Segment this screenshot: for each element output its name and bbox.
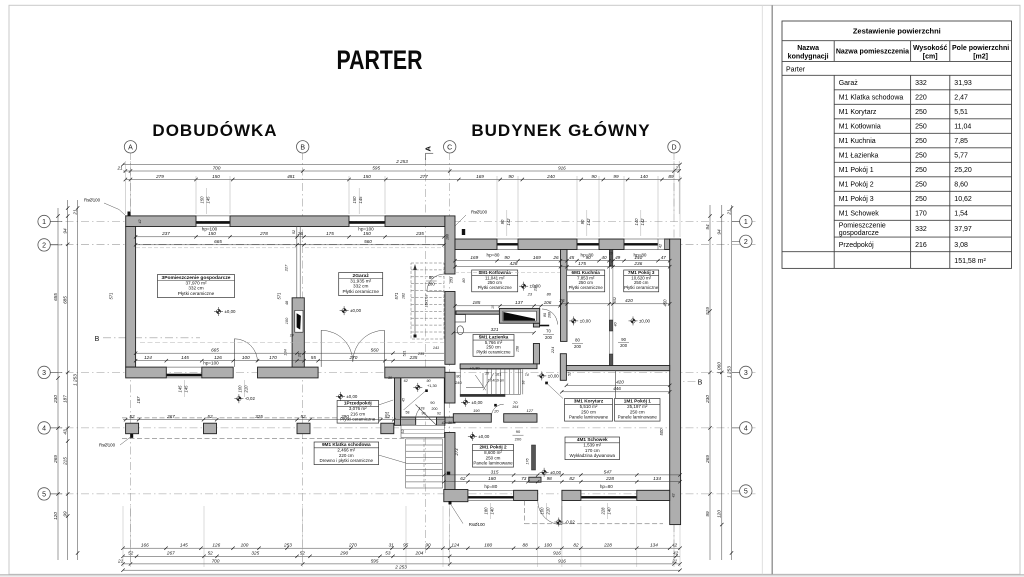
svg-text:134: 134: [650, 543, 658, 548]
svg-text:10: 10: [485, 371, 489, 375]
svg-text:2: 2: [42, 242, 46, 249]
svg-text:[cm]: [cm]: [923, 54, 938, 61]
svg-text:Płytki ceramiczne: Płytki ceramiczne: [178, 291, 215, 296]
svg-text:21: 21: [116, 165, 123, 170]
svg-text:73: 73: [521, 476, 527, 481]
svg-text:253: 253: [283, 543, 292, 548]
svg-text:188: 188: [446, 234, 450, 240]
svg-text:4: 4: [744, 425, 748, 432]
svg-text:180: 180: [488, 476, 496, 481]
svg-text:70: 70: [546, 329, 551, 334]
svg-text:40: 40: [601, 255, 607, 260]
svg-text:120: 120: [717, 510, 722, 518]
svg-text:420: 420: [625, 298, 633, 303]
svg-text:kondygnacji: kondygnacji: [788, 54, 829, 61]
svg-text:140: 140: [490, 507, 495, 515]
svg-text:145: 145: [358, 196, 363, 204]
svg-text:235: 235: [417, 352, 425, 356]
svg-text:+1,30: +1,30: [427, 383, 438, 388]
svg-text:150: 150: [363, 231, 371, 236]
svg-text:21: 21: [72, 209, 77, 216]
svg-text:1Przedpokój: 1Przedpokój: [344, 401, 372, 406]
svg-text:332: 332: [915, 226, 927, 233]
svg-text:42: 42: [442, 421, 446, 425]
svg-text:80: 80: [429, 275, 434, 280]
svg-text:3,08: 3,08: [954, 242, 968, 249]
svg-text:55: 55: [311, 355, 317, 360]
svg-text:200: 200: [574, 344, 582, 349]
svg-text:595: 595: [372, 165, 380, 170]
svg-text:665: 665: [214, 239, 222, 244]
svg-text:45: 45: [569, 255, 575, 260]
svg-text:B: B: [300, 144, 305, 151]
svg-text:169: 169: [470, 255, 478, 260]
svg-text:21: 21: [117, 558, 124, 563]
svg-text:250: 250: [915, 153, 927, 160]
svg-text:277: 277: [419, 174, 428, 179]
svg-text:42: 42: [138, 220, 142, 224]
svg-text:90: 90: [504, 255, 510, 260]
svg-text:151,58 m²: 151,58 m²: [954, 258, 986, 265]
svg-text:B: B: [95, 336, 100, 343]
svg-text:14: 14: [290, 334, 294, 338]
svg-text:321: 321: [491, 327, 499, 332]
svg-text:Wykładzina dywanowa: Wykładzina dywanowa: [570, 453, 616, 458]
svg-text:1 253: 1 253: [72, 374, 77, 386]
svg-text:±0,00: ±0,00: [639, 318, 651, 323]
svg-text:±0,00: ±0,00: [346, 394, 358, 399]
svg-text:-0,02: -0,02: [245, 396, 256, 401]
svg-text:158: 158: [516, 345, 520, 352]
svg-text:270: 270: [348, 543, 357, 548]
svg-text:665: 665: [211, 348, 219, 353]
svg-text:Płytki ceramiczne: Płytki ceramiczne: [476, 350, 511, 355]
svg-text:25,20: 25,20: [954, 167, 972, 174]
svg-text:521: 521: [402, 351, 406, 357]
svg-text:150: 150: [363, 174, 371, 179]
svg-text:5: 5: [744, 489, 748, 496]
svg-text:Nazwa: Nazwa: [797, 45, 819, 52]
svg-text:1,54: 1,54: [954, 211, 968, 218]
svg-text:10: 10: [609, 252, 613, 256]
svg-text:273: 273: [454, 448, 459, 457]
svg-text:82: 82: [573, 543, 579, 548]
svg-text:5,51: 5,51: [954, 109, 968, 116]
svg-text:52: 52: [300, 551, 306, 556]
svg-text:325: 325: [255, 414, 263, 419]
svg-text:141: 141: [433, 346, 439, 350]
svg-text:120: 120: [53, 512, 58, 520]
svg-text:Panele laminowane: Panele laminowane: [473, 460, 513, 465]
svg-text:[m2]: [m2]: [973, 54, 988, 61]
svg-text:210: 210: [546, 507, 551, 516]
svg-text:270: 270: [348, 355, 357, 360]
svg-text:40: 40: [613, 323, 617, 327]
svg-text:5M1 Łazienka: 5M1 Łazienka: [479, 335, 509, 340]
svg-text:42: 42: [659, 244, 663, 248]
svg-text:DOBUDÓWKA: DOBUDÓWKA: [152, 121, 277, 140]
svg-text:2 253: 2 253: [395, 159, 408, 164]
svg-text:31,93: 31,93: [954, 80, 972, 87]
svg-text:7,85: 7,85: [954, 138, 968, 145]
svg-text:8,60: 8,60: [954, 182, 968, 189]
svg-text:315: 315: [491, 469, 499, 474]
svg-text:23: 23: [527, 291, 533, 296]
svg-text:Przedpokój: Przedpokój: [839, 242, 874, 249]
svg-text:150: 150: [352, 196, 357, 204]
svg-text:89: 89: [668, 174, 674, 179]
svg-text:±0,00: ±0,00: [580, 318, 592, 323]
svg-text:94: 94: [63, 228, 68, 234]
svg-text:Pomieszczenie: Pomieszczenie: [839, 222, 886, 229]
svg-text:204: 204: [414, 551, 423, 556]
svg-text:145: 145: [180, 543, 188, 548]
svg-text:250: 250: [915, 167, 927, 174]
svg-text:2M1 Pokój 2: 2M1 Pokój 2: [479, 445, 506, 450]
svg-text:3: 3: [744, 370, 748, 377]
svg-text:3: 3: [42, 370, 46, 377]
svg-text:90: 90: [586, 255, 592, 260]
svg-text:30: 30: [448, 421, 452, 425]
svg-text:Drewno i płytki ceramiczne: Drewno i płytki ceramiczne: [320, 458, 374, 463]
svg-text:169: 169: [533, 255, 541, 260]
svg-text:45: 45: [401, 398, 405, 402]
svg-text:290: 290: [340, 414, 349, 419]
svg-text:90: 90: [508, 174, 514, 179]
svg-text:140: 140: [634, 218, 639, 226]
svg-text:82: 82: [569, 476, 575, 481]
svg-text:145: 145: [206, 196, 211, 204]
svg-text:420: 420: [616, 380, 624, 385]
svg-text:100: 100: [238, 385, 243, 393]
svg-text:700: 700: [213, 165, 221, 170]
svg-text:140: 140: [607, 507, 612, 515]
svg-text:42: 42: [672, 494, 676, 498]
svg-text:595: 595: [371, 558, 379, 563]
svg-text:571: 571: [109, 293, 114, 300]
svg-text:10,62: 10,62: [954, 196, 972, 203]
svg-text:52: 52: [129, 414, 135, 419]
svg-text:450: 450: [663, 299, 668, 307]
svg-text:Zestawienie powierzchni: Zestawienie powierzchni: [853, 27, 941, 36]
svg-text:74: 74: [524, 373, 528, 377]
svg-text:Wysokość: Wysokość: [913, 45, 948, 52]
svg-text:134: 134: [653, 476, 661, 481]
svg-text:21: 21: [674, 165, 681, 170]
svg-text:B: B: [698, 380, 703, 387]
svg-text:±0,00: ±0,00: [550, 470, 562, 475]
svg-text:6M1 Kuchnia: 6M1 Kuchnia: [572, 270, 601, 275]
svg-text:325: 325: [251, 551, 259, 556]
svg-text:52: 52: [128, 551, 134, 556]
svg-text:90: 90: [580, 219, 585, 224]
svg-text:210: 210: [244, 385, 249, 394]
svg-text:150: 150: [200, 196, 205, 204]
svg-text:9M1 Klatka schodowa: 9M1 Klatka schodowa: [322, 442, 371, 447]
svg-text:Garaż: Garaż: [839, 80, 859, 87]
svg-text:hp=80: hp=80: [487, 252, 500, 257]
svg-text:142: 142: [506, 218, 511, 226]
svg-text:100: 100: [241, 543, 249, 548]
svg-text:137: 137: [515, 300, 523, 305]
svg-text:90: 90: [591, 174, 597, 179]
svg-text:250: 250: [915, 124, 927, 131]
svg-text:547: 547: [604, 469, 612, 474]
svg-text:1 253: 1 253: [726, 366, 731, 378]
svg-text:90: 90: [430, 400, 435, 405]
svg-text:21: 21: [726, 209, 731, 216]
svg-text:200: 200: [548, 312, 552, 319]
svg-text:250: 250: [915, 109, 927, 116]
svg-text:1 060: 1 060: [717, 362, 722, 374]
svg-text:42: 42: [673, 551, 679, 556]
svg-text:gospodarcze: gospodarcze: [839, 230, 879, 237]
svg-text:47: 47: [661, 255, 667, 260]
svg-text:90: 90: [621, 337, 626, 342]
svg-text:187: 187: [136, 396, 141, 404]
svg-text:92: 92: [437, 411, 441, 415]
svg-text:M1 Pokój 3: M1 Pokój 3: [839, 196, 874, 203]
svg-text:42: 42: [672, 543, 678, 548]
svg-text:178: 178: [419, 406, 425, 410]
svg-text:26: 26: [297, 231, 304, 236]
svg-text:2 253: 2 253: [394, 565, 407, 570]
svg-text:Płytki ceramiczne: Płytki ceramiczne: [624, 285, 659, 290]
svg-text:52: 52: [208, 551, 214, 556]
svg-text:240: 240: [455, 380, 462, 385]
svg-text:90: 90: [516, 429, 521, 434]
svg-text:+1,30: +1,30: [470, 366, 481, 371]
svg-text:16x17,8: 16x17,8: [425, 295, 429, 308]
svg-text:52: 52: [568, 372, 572, 376]
svg-text:21: 21: [671, 558, 678, 563]
svg-text:±0,00: ±0,00: [472, 400, 484, 405]
svg-text:M1 Kotłownia: M1 Kotłownia: [839, 124, 881, 131]
svg-text:80: 80: [575, 338, 580, 343]
svg-text:M1 Korytarz: M1 Korytarz: [839, 109, 877, 116]
svg-text:145: 145: [178, 385, 183, 393]
svg-text:hp=80: hp=80: [484, 484, 497, 489]
svg-text:140: 140: [640, 174, 648, 179]
svg-text:134: 134: [282, 348, 287, 355]
svg-text:700: 700: [212, 558, 220, 563]
svg-text:152: 152: [613, 297, 617, 303]
svg-text:269: 269: [705, 455, 710, 464]
svg-text:RsØ100: RsØ100: [99, 443, 116, 448]
svg-text:175: 175: [578, 261, 586, 266]
svg-text:53: 53: [385, 551, 391, 556]
svg-text:±0,00: ±0,00: [225, 309, 237, 314]
svg-text:3M1 Korytarz: 3M1 Korytarz: [574, 399, 604, 404]
svg-text:98: 98: [522, 381, 526, 385]
svg-text:126: 126: [212, 543, 220, 548]
svg-text:571: 571: [394, 293, 399, 300]
svg-text:916: 916: [558, 558, 566, 563]
svg-text:230: 230: [53, 395, 58, 404]
svg-text:428: 428: [510, 261, 518, 266]
svg-text:±0,00: ±0,00: [350, 308, 362, 313]
svg-text:Parter: Parter: [786, 67, 806, 74]
svg-text:BUDYNEK GŁÓWNY: BUDYNEK GŁÓWNY: [471, 121, 650, 140]
svg-text:106: 106: [544, 300, 552, 305]
svg-text:7M1 Pokój 3: 7M1 Pokój 3: [628, 270, 655, 275]
svg-text:124: 124: [144, 355, 152, 360]
svg-text:200: 200: [428, 281, 436, 286]
svg-text:99: 99: [705, 511, 710, 517]
svg-text:90: 90: [500, 219, 505, 224]
svg-text:267: 267: [166, 414, 175, 419]
svg-text:26: 26: [552, 255, 559, 260]
svg-text:560: 560: [364, 239, 372, 244]
svg-text:80: 80: [547, 291, 552, 296]
svg-text:290: 290: [339, 551, 348, 556]
svg-text:M1 Kuchnia: M1 Kuchnia: [839, 138, 876, 145]
svg-text:98: 98: [547, 476, 553, 481]
svg-text:88: 88: [522, 543, 528, 548]
svg-text:170: 170: [915, 211, 927, 218]
svg-text:655: 655: [53, 293, 58, 301]
svg-text:126: 126: [214, 355, 222, 360]
svg-text:RsØ100: RsØ100: [84, 198, 101, 203]
svg-text:230: 230: [705, 395, 710, 404]
svg-text:180: 180: [484, 543, 492, 548]
svg-text:80: 80: [543, 313, 547, 317]
svg-text:166: 166: [141, 543, 149, 548]
svg-text:170: 170: [269, 355, 277, 360]
svg-text:216: 216: [915, 242, 927, 249]
svg-text:446: 446: [613, 386, 621, 391]
svg-text:182: 182: [402, 292, 406, 299]
svg-text:1: 1: [744, 219, 748, 226]
svg-text:127: 127: [527, 408, 534, 413]
svg-text:1M1 Pokój 1: 1M1 Pokój 1: [624, 399, 651, 404]
svg-text:A: A: [423, 146, 432, 152]
svg-text:187: 187: [63, 395, 68, 403]
svg-text:332: 332: [915, 80, 927, 87]
svg-text:519: 519: [705, 307, 710, 315]
svg-text:M1 Łazienka: M1 Łazienka: [839, 153, 879, 160]
svg-text:227: 227: [284, 264, 289, 272]
svg-text:215: 215: [63, 457, 68, 466]
svg-text:145: 145: [181, 355, 189, 360]
svg-text:D: D: [671, 144, 676, 151]
svg-text:175: 175: [326, 231, 334, 236]
svg-text:916: 916: [558, 165, 566, 170]
svg-text:C: C: [447, 144, 452, 151]
svg-text:26: 26: [558, 298, 565, 303]
svg-text:90: 90: [425, 543, 431, 548]
svg-text:150: 150: [212, 174, 220, 179]
svg-text:RsØ100: RsØ100: [471, 210, 488, 215]
svg-text:200: 200: [515, 436, 522, 441]
svg-text:hp=100: hp=100: [203, 360, 219, 365]
svg-text:M1 Klatka schodowa: M1 Klatka schodowa: [839, 95, 904, 102]
svg-text:100: 100: [540, 507, 545, 515]
svg-text:20: 20: [493, 409, 499, 414]
svg-text:571: 571: [277, 293, 282, 300]
svg-text:±0,00: ±0,00: [530, 284, 542, 289]
svg-text:500: 500: [659, 428, 664, 436]
svg-text:100: 100: [284, 317, 289, 324]
svg-text:26: 26: [298, 352, 302, 358]
svg-text:11,04: 11,04: [954, 124, 971, 131]
svg-text:235: 235: [415, 231, 424, 236]
svg-text:185: 185: [472, 300, 480, 305]
svg-text:37,97: 37,97: [954, 226, 972, 233]
svg-text:161: 161: [495, 373, 501, 377]
svg-text:Panele laminowane: Panele laminowane: [618, 414, 658, 419]
svg-text:150: 150: [208, 231, 216, 236]
svg-text:200: 200: [545, 335, 553, 340]
svg-text:±0,00: ±0,00: [548, 373, 560, 378]
svg-text:5,77: 5,77: [954, 153, 968, 160]
svg-text:94: 94: [705, 224, 710, 230]
svg-text:Panele laminowane: Panele laminowane: [569, 414, 609, 419]
svg-text:176: 176: [525, 457, 529, 464]
svg-text:99: 99: [613, 174, 619, 179]
svg-text:142: 142: [640, 218, 645, 226]
svg-text:-0,02: -0,02: [565, 520, 576, 525]
svg-text:Pole powierzchni: Pole powierzchni: [952, 45, 1009, 52]
svg-text:62: 62: [404, 379, 408, 383]
svg-text:99: 99: [63, 511, 68, 517]
svg-text:235: 235: [409, 355, 418, 360]
svg-text:253: 253: [449, 276, 453, 284]
svg-text:31: 31: [389, 543, 395, 548]
svg-text:M1 Pokój 1: M1 Pokój 1: [839, 167, 874, 174]
svg-text:269: 269: [53, 455, 58, 464]
svg-text:145: 145: [184, 385, 189, 393]
svg-text:228: 228: [603, 543, 612, 548]
svg-text:43: 43: [63, 429, 68, 435]
svg-text:140: 140: [634, 255, 642, 260]
svg-text:236: 236: [633, 261, 642, 266]
svg-text:58: 58: [406, 410, 410, 414]
svg-text:200: 200: [620, 343, 628, 348]
svg-text:124: 124: [451, 543, 459, 548]
svg-text:A: A: [128, 144, 133, 151]
svg-text:4M1 Schowek: 4M1 Schowek: [577, 437, 608, 442]
svg-text:52: 52: [401, 430, 405, 434]
svg-text:250: 250: [915, 138, 927, 145]
svg-text:Płytki ceramiczne: Płytki ceramiczne: [478, 285, 513, 290]
svg-text:250: 250: [915, 182, 927, 189]
svg-text:RsØ100: RsØ100: [469, 522, 486, 527]
svg-text:M1 Schowek: M1 Schowek: [839, 211, 880, 218]
svg-text:2,47: 2,47: [954, 95, 968, 102]
svg-text:240: 240: [546, 174, 555, 179]
svg-text:52: 52: [300, 414, 306, 419]
svg-text:190: 190: [473, 408, 480, 413]
svg-text:49: 49: [615, 255, 621, 260]
svg-text:PARTER: PARTER: [337, 45, 423, 75]
svg-text:2: 2: [744, 239, 748, 246]
svg-text:267: 267: [166, 551, 175, 556]
svg-text:180: 180: [484, 507, 489, 515]
svg-text:17,4/19 cm: 17,4/19 cm: [488, 378, 505, 382]
svg-text:M1 Pokój 2: M1 Pokój 2: [839, 182, 874, 189]
svg-text:237: 237: [161, 231, 170, 236]
svg-text:220: 220: [915, 95, 927, 102]
svg-text:224: 224: [551, 347, 555, 354]
svg-text:278: 278: [259, 231, 268, 236]
svg-text:100: 100: [544, 543, 552, 548]
svg-text:62: 62: [460, 476, 466, 481]
svg-text:916: 916: [553, 551, 561, 556]
svg-text:560: 560: [371, 348, 379, 353]
svg-text:228: 228: [605, 476, 614, 481]
svg-text:685: 685: [63, 296, 68, 304]
